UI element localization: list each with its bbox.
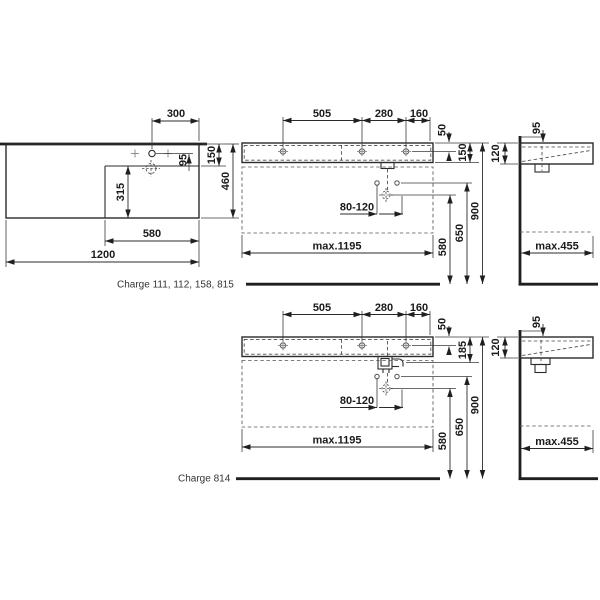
dim-drain-height: 580: [437, 238, 449, 256]
drain-trap-icon: [378, 357, 403, 374]
washbasin-dimension-drawing: 300 95 150 460 315 580 1200: [0, 0, 600, 600]
dim-max-depth: max.455: [535, 436, 578, 448]
basin-outline-plan: [6, 144, 199, 218]
drain-axis-icon: [379, 188, 393, 202]
dim-fixing-height: 650: [454, 224, 466, 242]
dim-body-height: 185: [457, 341, 469, 359]
front-view-a: 505 280 160 50 150 900 650 580: [242, 108, 489, 284]
dim-tap-spacing-mid: 280: [375, 108, 393, 120]
dim-tap-spacing-right: 160: [410, 108, 428, 120]
dim-tap-spacing-left: 505: [313, 108, 331, 120]
installation-envelope: [242, 361, 433, 428]
dim-overall-depth-label: 460: [220, 172, 232, 190]
bowl-slope-hidden-line: [522, 345, 591, 356]
drain-icon: [142, 160, 160, 177]
drain-trap-icon: [531, 358, 550, 373]
caption-series-b: Charge 814: [178, 474, 231, 485]
basin-side-outline: [520, 143, 593, 164]
tap-hole-icon: [278, 147, 288, 156]
dim-rim-to-fixing: 50: [437, 318, 449, 330]
dim-drain-height: 580: [437, 432, 449, 450]
dim-overall-width-label: 1200: [91, 249, 115, 261]
tap-hole-icon: [357, 341, 367, 350]
basin-rim-hidden-line: [244, 339, 431, 354]
dim-drain-offset: 95: [531, 122, 543, 134]
fixing-hole-icon: [375, 374, 399, 378]
tap-hole-icon: [401, 341, 411, 350]
dim-drain-offset: 95: [531, 316, 543, 328]
drain-stub: [381, 163, 394, 169]
drain-axis-icon: [379, 382, 393, 396]
basin-rim-hidden-line: [244, 145, 431, 160]
basin-side-outline: [520, 337, 593, 358]
dim-max-depth: max.455: [535, 241, 578, 253]
dim-max-width: max.1195: [313, 435, 362, 447]
dim-tap-offset-label: 300: [167, 108, 185, 120]
dim-tap-to-basin-label: 95: [178, 154, 190, 166]
dim-basin-width-label: 580: [143, 228, 161, 240]
front-view-b: 505 280 160 50 185 900 650 580: [242, 302, 489, 479]
dim-max-width: max.1195: [313, 241, 362, 253]
dim-basin-depth-label: 315: [115, 183, 127, 201]
caption-series-a: Charge 111, 112, 158, 815: [117, 280, 234, 291]
dim-body-height: 150: [457, 143, 469, 161]
fixing-hole-icon: [375, 181, 399, 185]
dim-tap-spacing-mid: 280: [375, 302, 393, 314]
dim-drain-adjust: 80-120: [340, 202, 374, 214]
dim-rim-height: 900: [470, 396, 482, 414]
side-view-a: 95 120 max.455: [490, 122, 598, 286]
tap-hole-icon: [401, 147, 411, 156]
dim-tap-spacing-left: 505: [313, 302, 331, 314]
dim-fixing-height: 650: [454, 418, 466, 436]
bowl-slope-hidden-line: [522, 151, 591, 162]
side-view-b: 95 120 max.455: [490, 316, 598, 480]
tap-hole-icon: [357, 147, 367, 156]
dim-rim-to-fixing: 50: [437, 124, 449, 136]
dim-front-edge-height: 120: [490, 338, 502, 356]
dim-rear-to-basin-label: 150: [206, 146, 218, 164]
plan-view: 300 95 150 460 315 580 1200: [0, 108, 239, 267]
dim-drain-adjust: 80-120: [340, 395, 374, 407]
dim-rim-height: 900: [470, 202, 482, 220]
tap-hole-icon: [278, 341, 288, 350]
technical-drawing-page: 300 95 150 460 315 580 1200: [0, 0, 600, 600]
installation-envelope: [242, 167, 433, 233]
dim-front-edge-height: 120: [490, 144, 502, 162]
dim-tap-spacing-right: 160: [410, 302, 428, 314]
